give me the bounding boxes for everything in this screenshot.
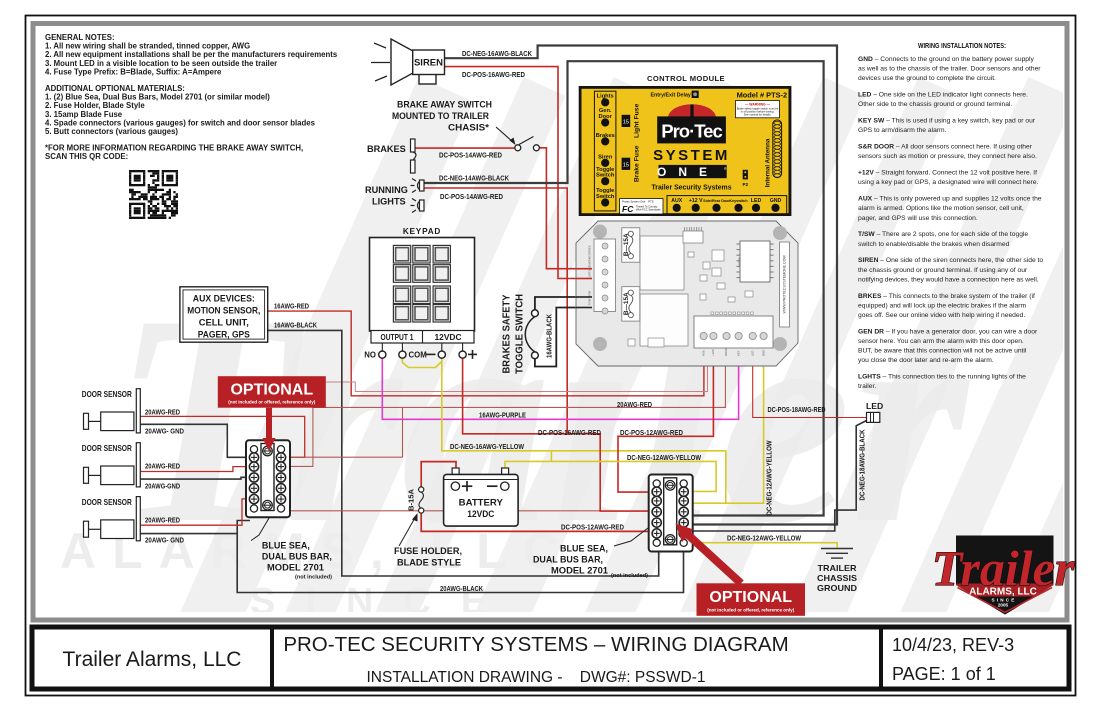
- svg-text:CONTROL MODULE: CONTROL MODULE: [647, 74, 725, 83]
- svg-text:SIREN – One side of the siren: SIREN – One side of the siren connects h…: [858, 257, 1043, 264]
- svg-text:MOUNTED TO TRAILER: MOUNTED TO TRAILER: [392, 111, 489, 121]
- svg-text:DC-NEG-16AWG-BLACK: DC-NEG-16AWG-BLACK: [462, 49, 532, 58]
- svg-text:+12 V: +12 V: [689, 198, 703, 204]
- svg-text:equipped) and will lock up the: equipped) and will lock up the electric …: [858, 302, 1026, 309]
- svg-text:TOGGLE SWITCH: TOGGLE SWITCH: [515, 294, 526, 374]
- svg-text:+12V – Straight forward. Conne: +12V – Straight forward. Connect the 12 …: [858, 170, 1037, 177]
- svg-text:15: 15: [623, 162, 629, 168]
- svg-text:5. Butt connectors (various ga: 5. Butt connectors (various gauges): [45, 127, 178, 136]
- svg-text:sensors such as motion or pres: sensors such as motion or pressure, they…: [858, 153, 1037, 160]
- svg-text:BRAKE AWAY SWITCH: BRAKE AWAY SWITCH: [397, 100, 492, 110]
- svg-text:+12V: +12V: [711, 349, 715, 356]
- svg-text:20AWG-RED: 20AWG-RED: [617, 400, 652, 409]
- svg-text:16AWG-BLACK: 16AWG-BLACK: [274, 321, 317, 330]
- svg-text:B—15A: B—15A: [623, 233, 630, 256]
- svg-text:DC-NEG-12AWG-YELLOW: DC-NEG-12AWG-YELLOW: [727, 533, 802, 542]
- svg-text:Trailer Alarms, LLC: Trailer Alarms, LLC: [63, 648, 242, 671]
- svg-text:DC-NEG-16AWG-YELLOW: DC-NEG-16AWG-YELLOW: [450, 442, 525, 451]
- svg-text:LED: LED: [750, 351, 754, 356]
- svg-text:LGHTS – This connection ties t: LGHTS – This connection ties to the runn…: [858, 374, 1026, 381]
- svg-text:BRAKES: BRAKES: [367, 144, 406, 154]
- svg-text:Protec System One PTS: Protec System One PTS: [622, 199, 654, 203]
- svg-text:DC-POS-16AWG-RED: DC-POS-16AWG-RED: [538, 428, 601, 437]
- svg-text:10/4/23, REV-3: 10/4/23, REV-3: [892, 635, 1014, 655]
- svg-text:(not included or offered, refe: (not included or offered, reference only…: [228, 399, 316, 404]
- svg-text:12VDC: 12VDC: [467, 509, 494, 520]
- svg-text:OPTIONAL: OPTIONAL: [709, 589, 792, 606]
- svg-text:AUX: AUX: [671, 198, 682, 204]
- svg-text:KEYPAD: KEYPAD: [403, 227, 441, 236]
- svg-text:DC-NEG-14AWG-BLACK: DC-NEG-14AWG-BLACK: [439, 174, 509, 183]
- svg-text:20AWG-RED: 20AWG-RED: [145, 408, 180, 417]
- svg-text:ALARMS, LLC: ALARMS, LLC: [969, 587, 1037, 598]
- svg-text:LED – One side on the LED indi: LED – One side on the LED indicator ligh…: [858, 92, 1028, 99]
- svg-text:DC-POS-16AWG-RED: DC-POS-16AWG-RED: [462, 70, 525, 79]
- svg-text:WWW.PROTECSYSTEMONE.COM: WWW.PROTECSYSTEMONE.COM: [782, 256, 786, 314]
- svg-text:P2: P2: [742, 182, 748, 187]
- svg-text:LED: LED: [751, 198, 762, 204]
- svg-text:devices use the ground to comp: devices use the ground to complete the c…: [858, 75, 996, 82]
- svg-text:LGHTS/GEN/BRKES/SIREN: LGHTS/GEN/BRKES/SIREN: [588, 245, 592, 278]
- svg-text:DC-NEG-12AWG-YELLOW: DC-NEG-12AWG-YELLOW: [765, 440, 774, 516]
- svg-text:WIRING INSTALLATION NOTES:: WIRING INSTALLATION NOTES:: [918, 41, 1006, 50]
- svg-text:ONE: ONE: [657, 165, 719, 179]
- svg-text:CHASSIS: CHASSIS: [817, 573, 857, 583]
- svg-text:16AWG-PURPLE: 16AWG-PURPLE: [479, 411, 526, 420]
- svg-text:Trailer Security Systems: Trailer Security Systems: [651, 184, 731, 191]
- svg-text:SYSTEM: SYSTEM: [653, 147, 730, 164]
- svg-text:DOOR SENSOR: DOOR SENSOR: [82, 390, 132, 399]
- svg-text:DC-POS-14AWG-RED: DC-POS-14AWG-RED: [440, 192, 503, 201]
- svg-text:BATTERY: BATTERY: [459, 498, 504, 509]
- svg-text:GND – Connects to the ground o: GND – Connects to the ground on the batt…: [858, 56, 1035, 63]
- svg-text:BLUE SEA,: BLUE SEA,: [560, 544, 608, 554]
- svg-text:goes off. See our online video: goes off. See our online video with help…: [858, 312, 1025, 319]
- svg-text:16AWG-BLACK: 16AWG-BLACK: [545, 314, 554, 358]
- svg-text:PAGE: 1 of 1: PAGE: 1 of 1: [892, 664, 996, 684]
- svg-text:DOOR: DOOR: [724, 348, 728, 356]
- svg-text:AUX: AUX: [701, 350, 705, 356]
- svg-text:S&R DOOR – All door sensors co: S&R DOOR – All door sensors connect here…: [858, 144, 1033, 151]
- svg-text:BLADE STYLE: BLADE STYLE: [397, 558, 461, 568]
- svg-text:Light Fuse: Light Fuse: [633, 103, 640, 138]
- svg-text:using a key pad or GPS, a desi: using a key pad or GPS, a designated wir…: [858, 179, 1038, 186]
- svg-text:DC-POS-12AWG-RED: DC-POS-12AWG-RED: [561, 523, 624, 532]
- svg-text:LIGHTS: LIGHTS: [372, 197, 406, 207]
- svg-text:PAGER, GPS: PAGER, GPS: [198, 330, 250, 340]
- svg-text:See manual for details.: See manual for details.: [744, 113, 772, 117]
- svg-text:20AWG-RED: 20AWG-RED: [145, 515, 180, 524]
- svg-text:Keyswitch: Keyswitch: [729, 199, 748, 203]
- svg-text:KEY SW – This is used if using: KEY SW – This is used if using a key swi…: [858, 118, 1036, 125]
- svg-text:DOOR SENSOR: DOOR SENSOR: [82, 498, 132, 507]
- svg-text:BUT, be aware that this connec: BUT, be aware that this connection will …: [858, 348, 1027, 355]
- svg-text:RUNNING: RUNNING: [365, 185, 408, 195]
- svg-text:TRAILER: TRAILER: [818, 563, 857, 573]
- svg-text:as well as to the chassis of t: as well as to the chassis of the trailer…: [858, 66, 1041, 73]
- svg-text:12VDC: 12VDC: [435, 332, 462, 342]
- svg-text:4. Fuse Type Prefix: B=Blade,: 4. Fuse Type Prefix: B=Blade, Suffix: A=…: [45, 67, 222, 76]
- svg-text:KEY: KEY: [736, 350, 740, 356]
- svg-text:BRAKES SAFETY: BRAKES SAFETY: [502, 294, 513, 373]
- svg-text:BRKES – This connects to the b: BRKES – This connects to the brake syste…: [858, 293, 1035, 300]
- svg-text:DUAL BUS BAR,: DUAL BUS BAR,: [262, 552, 332, 562]
- svg-text:PRO-TEC SECURITY SYSTEMS – WIR: PRO-TEC SECURITY SYSTEMS – WIRING DIAGRA…: [283, 633, 788, 656]
- svg-text:DC-NEG-12AWG-YELLOW: DC-NEG-12AWG-YELLOW: [627, 453, 702, 462]
- svg-text:(not included): (not included): [611, 573, 648, 579]
- svg-text:T/SW – There are 2 spots, one: T/SW – There are 2 spots, one for each s…: [858, 231, 1028, 238]
- svg-text:pager, and GPS will use this c: pager, and GPS will use this connection.: [858, 215, 978, 222]
- svg-text:INSTALLATION DRAWING - DWG#: INSTALLATION DRAWING - DWG#: PSSWD-1: [366, 669, 705, 686]
- svg-text:— WARNING —: — WARNING —: [745, 103, 771, 107]
- svg-text:Model # PTS-2: Model # PTS-2: [737, 90, 788, 99]
- svg-text:FUSE HOLDER,: FUSE HOLDER,: [394, 546, 462, 556]
- svg-text:FC: FC: [622, 204, 634, 214]
- svg-text:20AWG- GND: 20AWG- GND: [145, 536, 184, 545]
- svg-text:(not included): (not included): [295, 575, 332, 581]
- svg-text:LED: LED: [866, 401, 883, 411]
- svg-text:20AWG-RED: 20AWG-RED: [145, 462, 180, 471]
- svg-text:With FCC Standards: With FCC Standards: [636, 207, 661, 211]
- svg-text:Brake Fuse: Brake Fuse: [633, 145, 640, 182]
- svg-text:OUTPUT 1: OUTPUT 1: [381, 332, 414, 342]
- svg-text:2005: 2005: [998, 603, 1009, 608]
- svg-text:20AWG- GND: 20AWG- GND: [145, 426, 184, 435]
- svg-text:OPTIONAL: OPTIONAL: [230, 381, 313, 398]
- svg-text:SIREN: SIREN: [414, 58, 443, 69]
- svg-text:B-15A: B-15A: [407, 488, 416, 511]
- svg-text:GND: GND: [761, 350, 765, 356]
- svg-text:Other side to the chassis grou: Other side to the chassis ground or grou…: [858, 101, 1012, 108]
- svg-text:trailer.: trailer.: [858, 383, 876, 390]
- svg-text:BLUE SEA,: BLUE SEA,: [262, 541, 310, 551]
- svg-text:MOTION SENSOR,: MOTION SENSOR,: [187, 306, 260, 316]
- svg-text:16AWG-RED: 16AWG-RED: [274, 301, 309, 310]
- svg-text:NO: NO: [364, 351, 376, 360]
- svg-text:DC-POS-12AWG-RED: DC-POS-12AWG-RED: [620, 428, 683, 437]
- svg-text:GEN DR – If you have a generat: GEN DR – If you have a generator door, y…: [858, 328, 1038, 335]
- svg-text:Entry/Exit Delay: Entry/Exit Delay: [651, 93, 691, 99]
- svg-text:CHASIS*: CHASIS*: [448, 123, 489, 133]
- svg-text:you close the door later and r: you close the door later and re-arm the …: [858, 357, 994, 364]
- svg-text:DOOR SENSOR: DOOR SENSOR: [82, 444, 132, 453]
- svg-text:GROUND: GROUND: [817, 583, 857, 593]
- svg-text:MODEL 2701: MODEL 2701: [551, 566, 608, 576]
- svg-text:COM: COM: [409, 351, 427, 360]
- svg-text:DC-POS-18AWG-RED: DC-POS-18AWG-RED: [768, 407, 826, 414]
- svg-text:DC-NEG-18AWG-BLACK: DC-NEG-18AWG-BLACK: [858, 429, 867, 500]
- svg-text:(not included or offered, refe: (not included or offered, reference only…: [707, 607, 795, 612]
- svg-text:sensor here. You can arm the a: sensor here. You can arm the alarm with …: [858, 338, 1024, 345]
- svg-text:AUX – This is only powered up: AUX – This is only powered up and suppli…: [858, 196, 1042, 203]
- svg-text:20AWG-GND: 20AWG-GND: [145, 481, 180, 490]
- svg-text:MODEL 2701: MODEL 2701: [267, 563, 324, 573]
- svg-text:GND: GND: [770, 198, 782, 204]
- svg-text:CELL UNIT,: CELL UNIT,: [199, 318, 249, 328]
- svg-text:®: ®: [724, 167, 727, 171]
- svg-text:Pro·Tec: Pro·Tec: [661, 121, 722, 142]
- svg-text:alarm is armed. Options like t: alarm is armed. Options like the motion …: [858, 205, 1024, 212]
- svg-text:Internal Antenna: Internal Antenna: [764, 138, 771, 187]
- svg-text:switch to enable/disable the b: switch to enable/disable the brakes when…: [858, 241, 1010, 248]
- svg-text:DUAL BUS BAR,: DUAL BUS BAR,: [533, 555, 603, 565]
- svg-text:20AWG-BLACK: 20AWG-BLACK: [440, 584, 483, 593]
- svg-text:notifying devices, they would: notifying devices, they would have a con…: [858, 276, 1039, 283]
- svg-text:15: 15: [623, 120, 629, 126]
- svg-text:Side/Rear Door: Side/Rear Door: [703, 199, 730, 203]
- svg-text:DC-POS-14AWG-RED: DC-POS-14AWG-RED: [439, 151, 502, 160]
- svg-text:SCAN THIS QR CODE:: SCAN THIS QR CODE:: [45, 152, 128, 161]
- svg-text:the chassis ground or ground t: the chassis ground or ground terminal. I…: [858, 267, 1028, 274]
- svg-text:GPS to arm/disarm the alarm.: GPS to arm/disarm the alarm.: [858, 127, 947, 134]
- svg-text:AUX DEVICES:: AUX DEVICES:: [193, 294, 255, 304]
- svg-text:B—15A: B—15A: [623, 292, 630, 315]
